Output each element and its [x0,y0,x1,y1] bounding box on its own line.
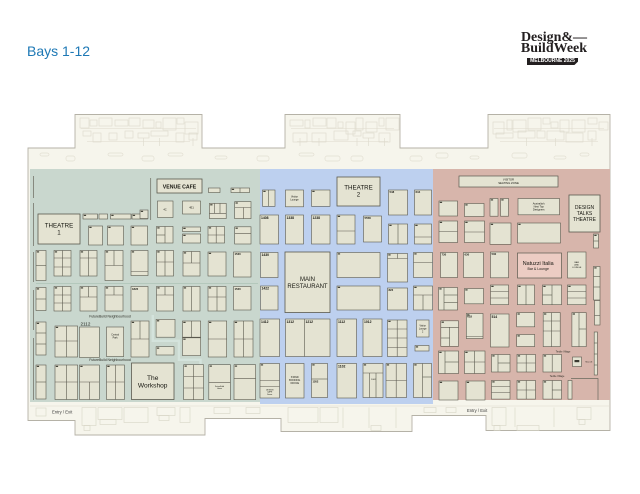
svg-text:AND: AND [574,264,579,267]
svg-text:THEATRE: THEATRE [45,223,73,230]
svg-text:1412: 1412 [261,320,269,324]
svg-text:FutureBuild Neighbourhood: FutureBuild Neighbourhood [89,315,131,319]
svg-text:730: 730 [442,253,447,257]
svg-text:1002: 1002 [371,379,377,381]
svg-text:1202: 1202 [313,380,319,384]
svg-text:Lounge: Lounge [419,329,427,331]
svg-text:Visitor: Visitor [420,325,427,328]
svg-text:618: 618 [467,314,472,318]
svg-text:4C: 4C [163,208,166,212]
svg-text:MAIN: MAIN [300,277,315,283]
svg-text:1530: 1530 [235,252,242,256]
svg-text:530: 530 [492,252,497,256]
svg-text:1338: 1338 [287,216,295,220]
svg-text:1408: 1408 [261,216,269,220]
svg-text:Demo: Demo [267,394,272,396]
svg-text:Home: Home [217,388,222,390]
svg-text:1102: 1102 [338,364,345,368]
svg-text:4E1: 4E1 [189,206,194,210]
svg-text:Mezz Lift: Mezz Lift [586,361,593,364]
svg-text:LOUNGE: LOUNGE [572,267,582,269]
svg-text:THEATRE: THEATRE [573,217,597,223]
svg-text:1312: 1312 [287,320,295,324]
svg-text:VENUE CAFE: VENUE CAFE [163,185,197,191]
svg-text:1822: 1822 [132,287,139,291]
svg-text:FutureBuild Neighbourhood: FutureBuild Neighbourhood [89,358,131,362]
svg-text:1012: 1012 [364,320,372,324]
svg-text:644: 644 [416,190,421,194]
svg-text:5558: 5558 [365,216,372,220]
svg-text:2: 2 [357,192,361,199]
svg-text:Textile Village: Textile Village [550,375,565,378]
svg-text:2112: 2112 [81,322,91,327]
svg-text:630: 630 [465,253,470,257]
svg-text:1212: 1212 [306,320,314,324]
svg-text:The: The [147,375,159,382]
svg-text:BAR: BAR [574,261,579,264]
svg-text:SEATING ZONE: SEATING ZONE [498,181,519,185]
svg-text:1: 1 [57,230,61,237]
svg-text:1112: 1112 [338,320,345,324]
svg-text:1238: 1238 [313,216,321,220]
svg-text:Park: Park [113,337,119,340]
svg-text:Bar & Lounge: Bar & Lounge [527,267,548,271]
svg-text:548: 548 [390,190,395,194]
svg-text:Workshop: Workshop [138,383,168,390]
svg-text:1430: 1430 [262,253,270,257]
svg-text:1422: 1422 [262,287,270,291]
svg-text:RESTAURANT: RESTAURANT [287,284,328,290]
svg-text:514: 514 [492,315,498,319]
svg-text:1520: 1520 [235,287,242,291]
svg-text:822: 822 [389,288,394,292]
svg-text:Textile Village: Textile Village [556,351,571,354]
svg-text:Entry / Exit: Entry / Exit [467,408,488,413]
svg-text:Lounge: Lounge [290,199,299,202]
svg-text:Entry / Exit: Entry / Exit [52,410,73,415]
svg-text:Designers: Designers [533,208,545,212]
svg-text:THEATRE: THEATRE [344,185,372,192]
svg-text:OFFICE: OFFICE [290,382,299,385]
